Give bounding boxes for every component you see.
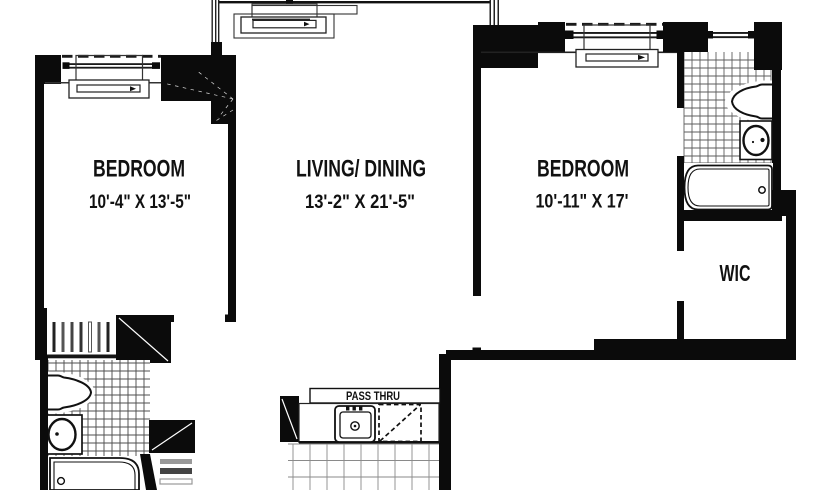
svg-text:WIC: WIC (720, 260, 751, 286)
svg-text:BEDROOM: BEDROOM (93, 156, 185, 183)
svg-text:10'-11" X 17': 10'-11" X 17' (536, 192, 629, 213)
svg-text:BEDROOM: BEDROOM (537, 156, 629, 183)
svg-text:13'-2" X 21'-5": 13'-2" X 21'-5" (305, 192, 415, 213)
svg-text:PASS THRU: PASS THRU (346, 389, 400, 403)
svg-text:LIVING/ DINING: LIVING/ DINING (296, 156, 426, 183)
svg-text:10'-4" X 13'-5": 10'-4" X 13'-5" (89, 192, 191, 213)
